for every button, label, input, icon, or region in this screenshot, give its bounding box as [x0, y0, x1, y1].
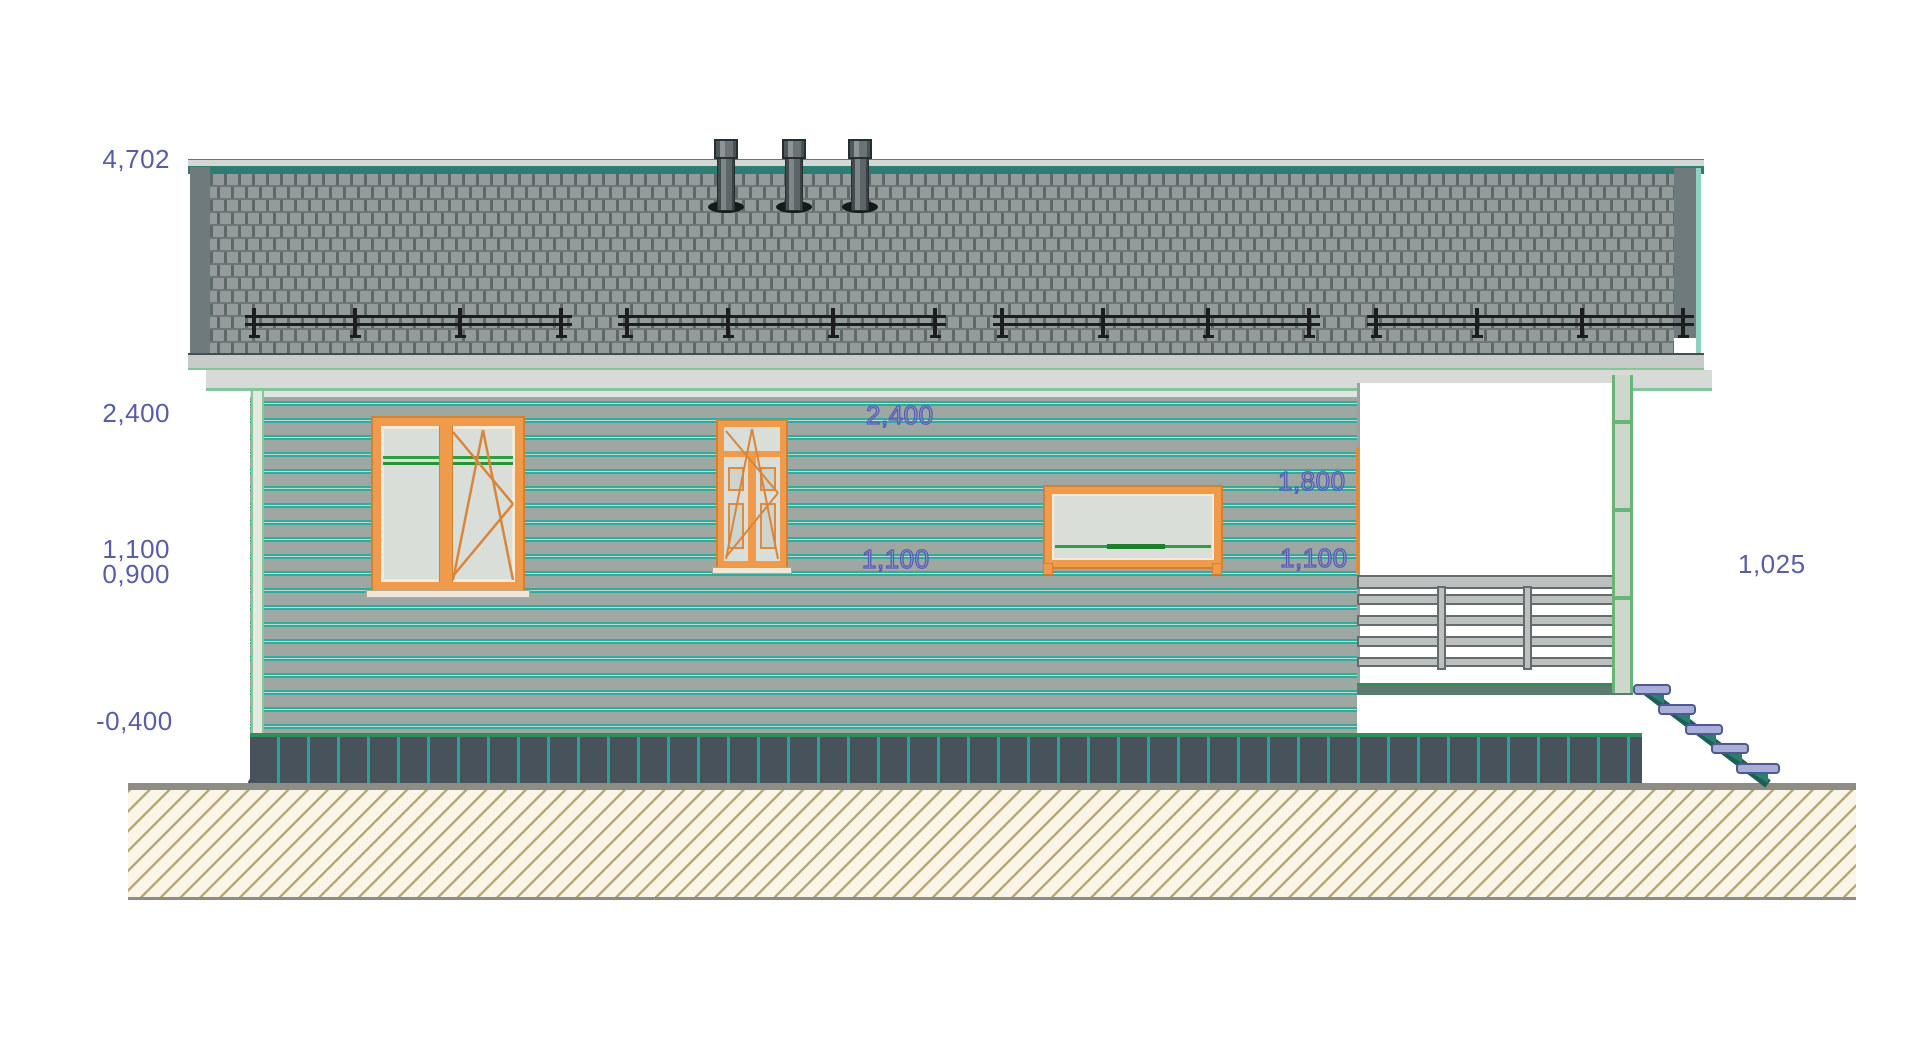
downpipe: [251, 391, 264, 788]
stair-tread: [1659, 705, 1695, 714]
stair-tread: [1634, 685, 1670, 694]
chimney-cap: [782, 139, 806, 159]
snow-guard-bracket: [831, 308, 835, 338]
ground-hatch: [128, 790, 1856, 897]
porch-mark-1100: 1,100: [1280, 545, 1348, 571]
snow-guard-segment-2: [618, 306, 946, 340]
eave-fascia-upper: [188, 353, 1704, 370]
railing-post: [1523, 586, 1532, 670]
railing-rail: [1357, 615, 1615, 626]
snow-guard-bracket: [1206, 308, 1210, 338]
snow-guard-bracket: [458, 308, 462, 338]
level-label-4702: 4,702: [96, 146, 170, 172]
railing-rail: [1357, 636, 1615, 647]
wall-mark-2400: 2,400: [866, 402, 934, 428]
roof-ridge-band: [188, 166, 1704, 174]
snow-guard-bracket: [1580, 308, 1584, 338]
window-right: [1045, 487, 1221, 567]
ground-surface-line: [128, 783, 1856, 790]
railing-post: [1437, 586, 1446, 670]
snow-guard-bracket: [1374, 308, 1378, 338]
exterior-stairs: [1628, 678, 1808, 790]
snow-guard-rail: [245, 323, 572, 326]
porch-mark-1800: 1,800: [1278, 468, 1346, 494]
snow-guard-bracket: [933, 308, 937, 338]
post-mark: [1615, 508, 1630, 512]
stair-tread: [1712, 744, 1748, 753]
level-label-2400: 2,400: [96, 400, 170, 426]
snow-guard-segment-3: [993, 306, 1320, 340]
stair-tread: [1737, 764, 1779, 773]
porch-door-edge: [1356, 447, 1359, 573]
ground: [128, 783, 1856, 900]
snow-guard-segment-1: [245, 306, 572, 340]
roof-rake-right-edge: [1696, 168, 1701, 354]
snow-guard-rail: [618, 315, 946, 318]
snow-guard-rail: [993, 315, 1320, 318]
snow-guard-bracket: [559, 308, 563, 338]
window-sill-stub: [1212, 563, 1222, 575]
stair-mark-1025: 1,025: [1738, 551, 1806, 577]
elevation-drawing: 4,702 2,400 1,100 0,900 -0,400 2,400 1,1…: [0, 0, 1920, 1038]
snow-guard-segment-4: [1367, 306, 1694, 340]
window-green-segment: [1107, 544, 1165, 549]
window-inner-trim: [1052, 494, 1214, 560]
chimney-body: [785, 157, 803, 211]
snow-guard-bracket: [1681, 308, 1685, 338]
post-mark: [1615, 596, 1630, 600]
snow-guard-bracket: [625, 308, 629, 338]
window-sill: [366, 590, 530, 598]
snow-guard-bracket: [726, 308, 730, 338]
window-left: [373, 418, 523, 590]
chimney-body: [717, 157, 735, 211]
level-label-m0400: -0,400: [96, 708, 170, 734]
snow-guard-bracket: [1307, 308, 1311, 338]
stair-tread: [1686, 725, 1722, 734]
chimney-cap: [714, 139, 738, 159]
wall-mark-1100: 1,100: [862, 546, 930, 572]
railing-handrail: [1357, 575, 1615, 589]
opening-symbol-icon: [724, 427, 780, 561]
plinth: [250, 733, 1642, 783]
chimney-cap: [848, 139, 872, 159]
door-center: [718, 421, 786, 567]
level-label-0900: 0,900: [96, 561, 170, 587]
window-sill-stub: [1043, 563, 1053, 575]
snow-guard-rail: [993, 323, 1320, 326]
snow-guard-bracket: [1000, 308, 1004, 338]
snow-guard-bracket: [1475, 308, 1479, 338]
porch-corner-post: [1612, 375, 1633, 693]
post-mark: [1615, 420, 1630, 424]
porch-deck-edge: [1357, 683, 1633, 695]
chimney-body: [851, 157, 869, 211]
opening-symbol-icon: [451, 426, 515, 582]
snow-guard-rail: [245, 315, 572, 318]
snow-guard-rail: [618, 323, 946, 326]
railing-bottom-rail: [1357, 657, 1615, 667]
porch-opening: [1357, 383, 1633, 733]
snow-guard-bracket: [252, 308, 256, 338]
roof-rake-left: [190, 167, 210, 353]
snow-guard-rail: [1367, 323, 1694, 326]
door-sill: [712, 567, 792, 574]
railing-rail: [1357, 594, 1615, 605]
snow-guard-bracket: [1101, 308, 1105, 338]
snow-guard-rail: [1367, 315, 1694, 318]
snow-guard-bracket: [353, 308, 357, 338]
ground-bottom-line: [128, 897, 1856, 900]
